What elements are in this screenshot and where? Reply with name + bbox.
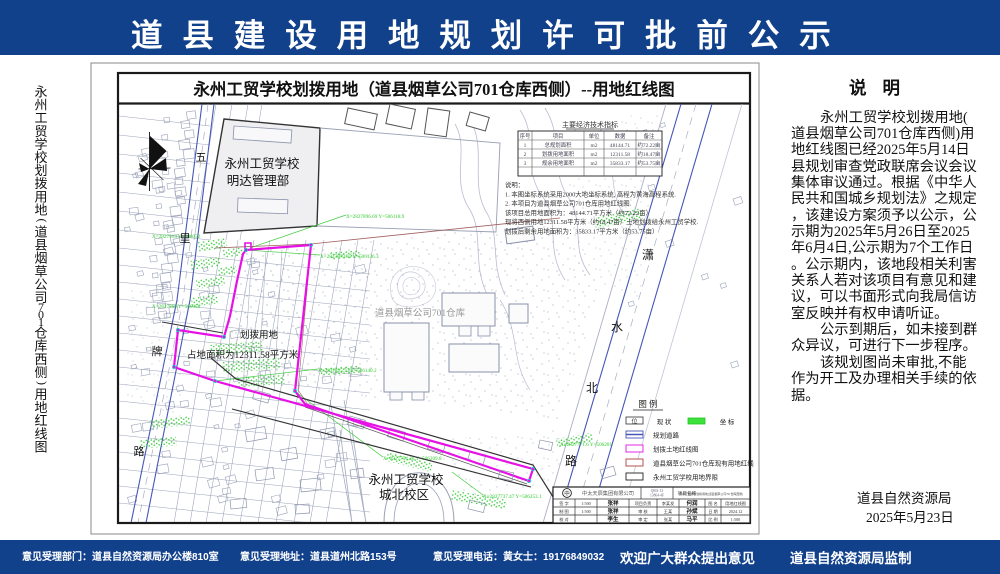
svg-text:路: 路: [565, 453, 577, 468]
svg-text:潇: 潇: [642, 248, 654, 262]
svg-text:现 状: 现 状: [657, 417, 672, 426]
svg-text:孙斌: 孙斌: [686, 507, 698, 515]
svg-text:何润: 何润: [686, 499, 698, 507]
svg-text:2. 本项目为道县烟草公司701仓库用地红线图.: 2. 本项目为道县烟草公司701仓库用地红线图.: [505, 199, 632, 208]
svg-text:规划道路: 规划道路: [653, 431, 680, 440]
svg-text:位: 位: [632, 418, 638, 426]
svg-text:2024.12: 2024.12: [729, 509, 743, 514]
svg-text:路: 路: [134, 445, 145, 458]
svg-text:备注: 备注: [644, 132, 655, 140]
svg-text:比 例: 比 例: [708, 516, 717, 523]
svg-text:m2: m2: [591, 143, 598, 149]
svg-text:约53.75亩: 约53.75亩: [638, 159, 662, 167]
svg-text:城北校区: 城北校区: [379, 487, 429, 502]
svg-text:马平: 马平: [686, 515, 698, 523]
svg-text:序号: 序号: [520, 132, 531, 140]
svg-text:1:500: 1:500: [731, 517, 741, 522]
svg-text:北: 北: [586, 381, 598, 395]
svg-text:划拨用地面积: 划拨用地面积: [542, 150, 575, 158]
svg-text:X=2827868 Y=506058: X=2827868 Y=506058: [152, 304, 201, 310]
svg-text:道县烟草公司701仓库: 道县烟草公司701仓库: [375, 307, 466, 319]
svg-text:X=2827896.69 Y=506118.9: X=2827896.69 Y=506118.9: [346, 214, 405, 220]
svg-text:单位: 单位: [589, 132, 600, 140]
svg-text:中: 中: [564, 489, 570, 497]
svg-text:永州工贸学校划拨用地(道县烟草公司701仓库西侧): 永州工贸学校划拨用地(道县烟草公司701仓库西侧): [679, 491, 743, 496]
svg-text:签 字: 签 字: [559, 500, 568, 506]
svg-text:X=2827825.33 Y=506140.2: X=2827825.33 Y=506140.2: [318, 368, 377, 374]
svg-text:永州工贸学校: 永州工贸学校: [368, 472, 444, 487]
svg-text:占地面积为12311.58平方米: 占地面积为12311.58平方米: [187, 349, 299, 361]
svg-text:1: 1: [524, 143, 527, 149]
svg-text:m2: m2: [591, 161, 598, 167]
svg-text:道县烟草公司701仓库现有用地红线: 道县烟草公司701仓库现有用地红线: [653, 459, 754, 468]
svg-text:说明：: 说明：: [505, 180, 524, 189]
svg-text:规余用地面积: 规余用地面积: [542, 159, 575, 167]
svg-text:划拨后剩余用地面积为：35833.17平方米（约53.75亩: 划拨后剩余用地面积为：35833.17平方米（约53.75亩）: [505, 227, 658, 236]
svg-text:审 定: 审 定: [638, 516, 647, 523]
svg-text:里: 里: [180, 232, 191, 245]
svg-text:永州工贸学校用地界限: 永州工贸学校用地界限: [653, 473, 719, 482]
svg-text:用地红线图: 用地红线图: [725, 500, 746, 507]
svg-text:约18.47亩: 约18.47亩: [638, 150, 662, 158]
svg-text:m2: m2: [591, 152, 598, 158]
svg-text:明达管理部: 明达管理部: [227, 173, 290, 188]
svg-text:校 对: 校 对: [559, 516, 568, 523]
svg-text:项目负责: 项目负责: [635, 500, 652, 507]
svg-text:12311.58: 12311.58: [610, 152, 630, 158]
svg-text:X=2827737.47 Y=506253.1: X=2827737.47 Y=506253.1: [483, 494, 542, 500]
svg-text:该项目总用地面积为：48144.71平方米（约72.22亩）: 该项目总用地面积为：48144.71平方米（约72.22亩）: [505, 208, 652, 217]
svg-text:X=2827879.35 Y=506136.3: X=2827879.35 Y=506136.3: [320, 254, 379, 260]
svg-text:现将西侧用地12311.58平方米（约18.47亩）土地划拨: 现将西侧用地12311.58平方米（约18.47亩）土地划拨给永州工贸学校.: [505, 217, 698, 226]
svg-text:牌: 牌: [152, 344, 163, 358]
svg-text:3: 3: [524, 161, 527, 167]
svg-text:1. 本图坐标系统采用2000大地坐标系统, 高程为黄海高程: 1. 本图坐标系统采用2000大地坐标系统, 高程为黄海高程系统.: [505, 189, 676, 198]
svg-text:48144.71: 48144.71: [610, 143, 631, 149]
svg-text:审 核: 审 核: [638, 508, 648, 515]
svg-text:数据: 数据: [615, 132, 626, 140]
svg-text:制 图: 制 图: [559, 508, 568, 515]
svg-text:X=2827913 Y=506052: X=2827913 Y=506052: [152, 234, 201, 240]
svg-text:五: 五: [196, 152, 207, 164]
svg-text:主要经济技术指标: 主要经济技术指标: [562, 120, 618, 129]
svg-text:张某: 张某: [664, 516, 673, 523]
svg-text:中太天辰集团有限公司: 中太天辰集团有限公司: [582, 489, 634, 497]
svg-text:张祥: 张祥: [607, 499, 619, 507]
svg-text:项目: 项目: [553, 133, 564, 140]
svg-text:张祥: 张祥: [607, 507, 619, 515]
svg-text:永州工贸学校划拨用地（道县烟草公司701仓库西侧）--用地红: 永州工贸学校划拨用地（道县烟草公司701仓库西侧）--用地红线图: [192, 79, 674, 99]
svg-text:划拨用地: 划拨用地: [240, 329, 279, 341]
svg-text:永州工贸学校: 永州工贸学校: [224, 156, 300, 171]
svg-text:划拨土地红线图: 划拨土地红线图: [653, 445, 699, 454]
svg-text:13864-4F: 13864-4F: [650, 494, 664, 498]
svg-text:35833.17: 35833.17: [610, 161, 631, 167]
svg-text:图 例: 图 例: [638, 399, 657, 409]
svg-text:图 名: 图 名: [708, 500, 717, 507]
svg-text:坐 标: 坐 标: [720, 417, 735, 426]
svg-text:1:500: 1:500: [581, 509, 591, 514]
svg-text:X=2827771.6 Y=506281: X=2827771.6 Y=506281: [560, 442, 612, 448]
svg-text:总规划面积: 总规划面积: [545, 141, 573, 149]
svg-text:QBA-13: QBA-13: [651, 489, 664, 493]
svg-text:约72.22亩: 约72.22亩: [638, 141, 662, 149]
svg-text:1:500: 1:500: [581, 501, 591, 506]
svg-text:李生: 李生: [606, 515, 619, 523]
svg-text:水: 水: [611, 320, 623, 334]
svg-text:李某发: 李某发: [662, 500, 675, 507]
svg-text:2: 2: [524, 152, 527, 158]
